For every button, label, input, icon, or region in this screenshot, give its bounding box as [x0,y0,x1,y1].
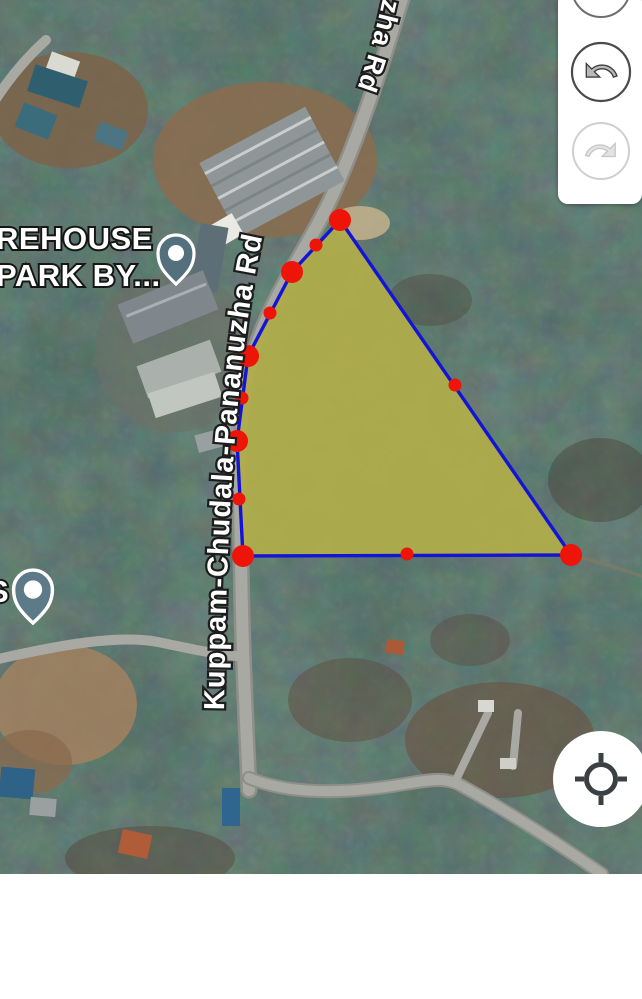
redo-button[interactable] [573,123,629,179]
plot-vertex-marker[interactable] [310,239,323,252]
undo-button[interactable] [572,43,630,101]
listing-screenshot: Kuppam-Chudala-Pananuzha Rd zha Rd REHOU… [0,0,642,999]
satellite-map[interactable]: Kuppam-Chudala-Pananuzha Rd zha Rd REHOU… [0,0,642,874]
plot-vertex-marker[interactable] [560,544,582,566]
pin-dot-icon [168,245,184,261]
pin-dot-icon [24,580,42,598]
plot-vertex-marker[interactable] [449,379,462,392]
plot-vertex-marker[interactable] [401,548,414,561]
tool-button-partial[interactable] [572,0,630,17]
edit-toolbar [558,0,642,204]
poi-label-fragment: S [0,574,9,609]
poi-label-line1: REHOUSE [0,221,153,256]
advertiser-banner: FORTUNE PROPERTIES 99 46 77 44 52 INDIA [0,874,642,999]
poi-label-line2: PARK BY... [0,258,161,293]
plot-vertex-marker[interactable] [264,307,277,320]
plot-vertex-marker[interactable] [232,545,254,567]
plot-vertex-marker[interactable] [281,261,303,283]
plot-vertex-marker[interactable] [329,209,351,231]
my-location-button[interactable] [553,731,642,827]
